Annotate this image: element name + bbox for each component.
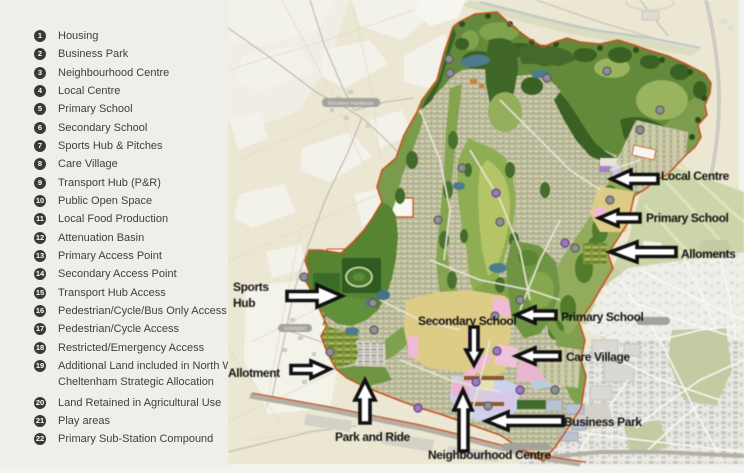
svg-text:Park and Ride: Park and Ride bbox=[335, 430, 411, 444]
svg-text:Local Centre: Local Centre bbox=[661, 169, 730, 183]
svg-text:Alloments: Alloments bbox=[681, 247, 736, 261]
svg-text:Neighbourhood Centre: Neighbourhood Centre bbox=[428, 448, 551, 462]
svg-text:Elmstone Hardwicke: Elmstone Hardwicke bbox=[328, 101, 374, 107]
svg-text:Care Village: Care Village bbox=[566, 350, 630, 364]
svg-text:Business Park: Business Park bbox=[564, 415, 642, 429]
svg-text:Secondary School: Secondary School bbox=[418, 314, 516, 328]
svg-text:Sports: Sports bbox=[233, 280, 269, 294]
svg-text:Hub: Hub bbox=[233, 296, 255, 310]
svg-text:Allotment: Allotment bbox=[228, 366, 280, 380]
svg-text:Primary School: Primary School bbox=[561, 310, 643, 324]
svg-text:Uckington: Uckington bbox=[284, 326, 306, 332]
svg-text:Primary School: Primary School bbox=[646, 211, 728, 225]
